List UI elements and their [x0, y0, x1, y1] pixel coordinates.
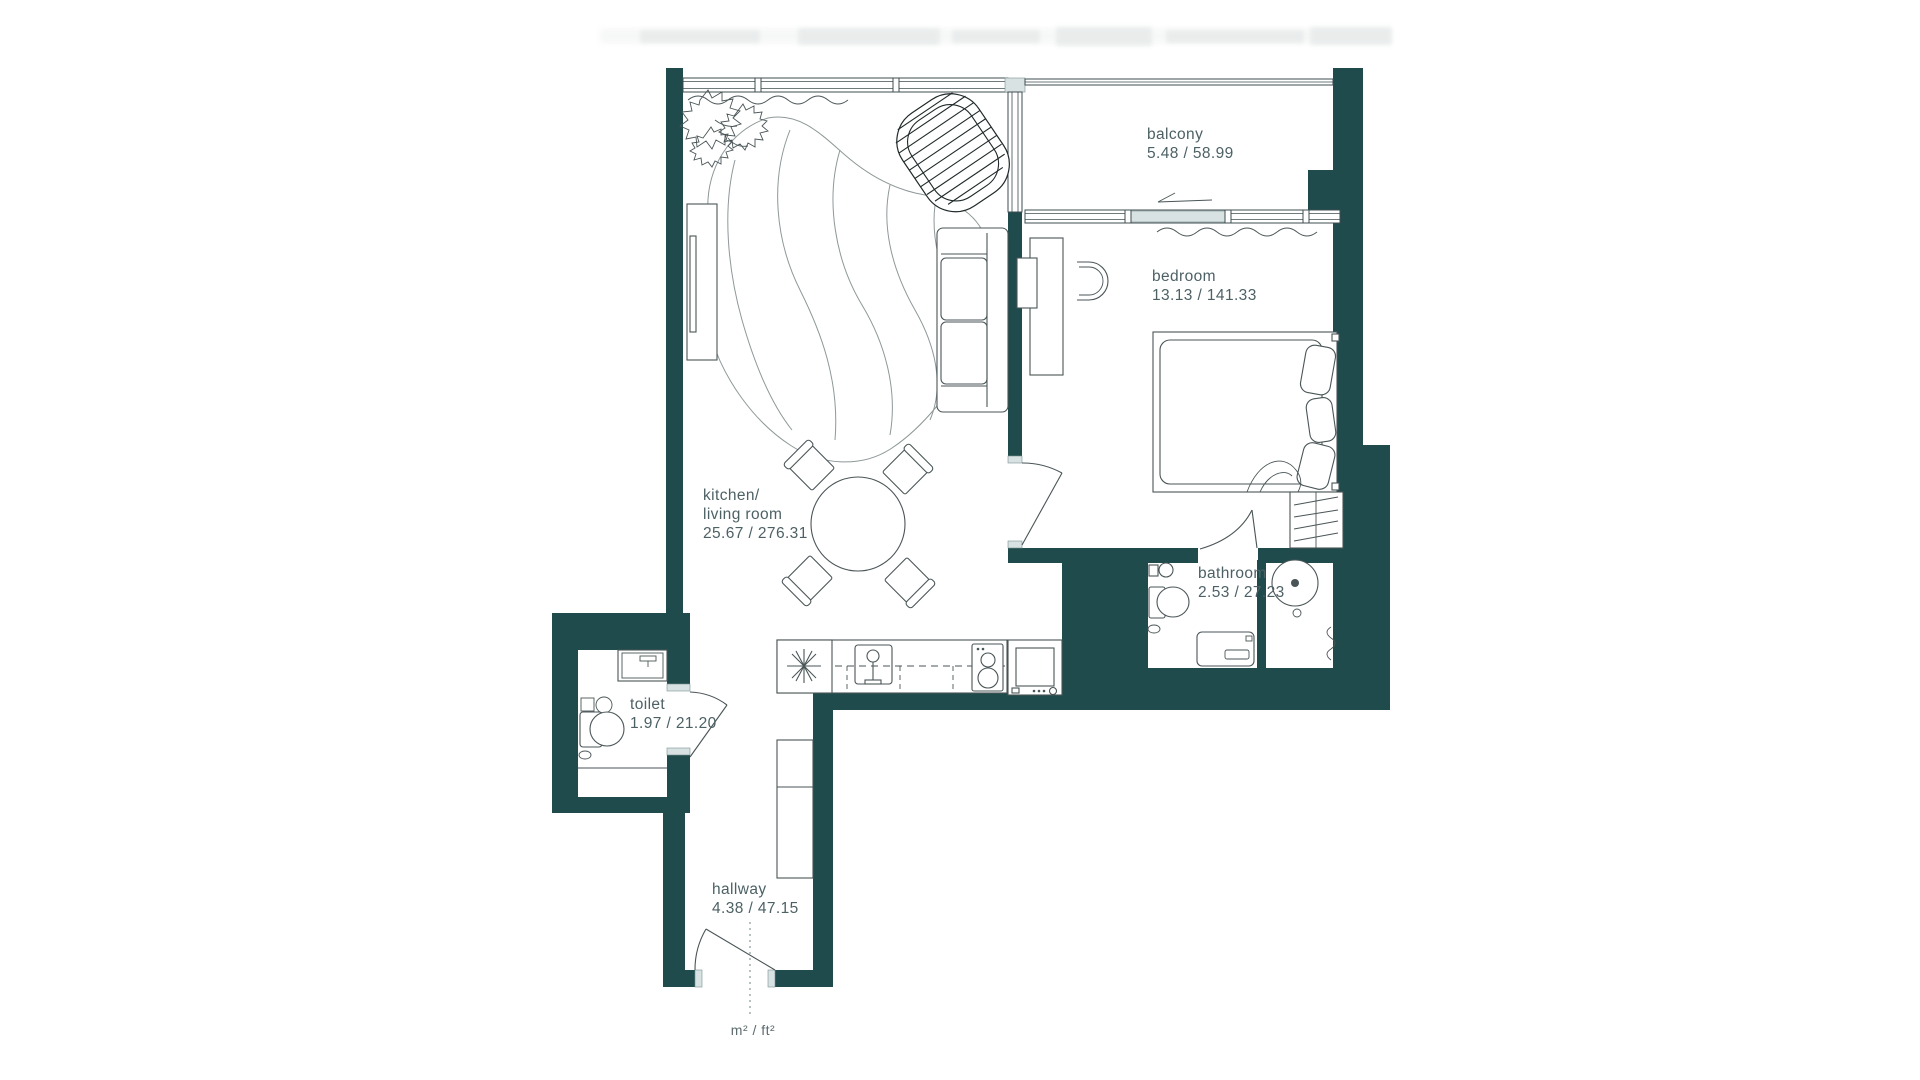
plant — [680, 90, 768, 167]
bathroom-toilet — [1148, 587, 1189, 633]
kitchen-counter — [777, 640, 1007, 693]
dining-table — [811, 477, 905, 571]
room-area: 1.97 / 21.20 — [630, 715, 717, 734]
dining-chair — [783, 439, 836, 492]
room-name: balcony — [1147, 126, 1234, 145]
balcony-label: balcony 5.48 / 58.99 — [1147, 126, 1234, 164]
sliding-door-arrow-icon — [1158, 193, 1212, 202]
room-name: bathroom — [1198, 565, 1285, 584]
room-area: 5.48 / 58.99 — [1147, 145, 1234, 164]
room-area: 25.67 / 276.31 — [703, 525, 808, 544]
bathroom-door — [1200, 510, 1257, 549]
room-name: hallway — [712, 881, 799, 900]
dining-chair — [781, 554, 834, 607]
sofa — [937, 228, 1008, 412]
toilet-label: toilet 1.97 / 21.20 — [630, 696, 717, 734]
bedroom-window — [1025, 210, 1340, 223]
bedroom-label: bedroom 13.13 / 141.33 — [1152, 268, 1257, 306]
curtain-bedroom — [1157, 228, 1317, 236]
bathroom-label: bathroom 2.53 / 27.23 — [1198, 565, 1285, 603]
bed — [1153, 332, 1339, 492]
room-name: bedroom — [1152, 268, 1257, 287]
hood-icon — [787, 649, 821, 683]
hallway-cabinet — [777, 740, 813, 878]
living-room-window — [683, 78, 1025, 92]
room-area: 13.13 / 141.33 — [1152, 287, 1257, 306]
wardrobe — [1290, 492, 1343, 548]
hallway-label: hallway 4.38 / 47.15 — [712, 881, 799, 919]
desk-chair — [1077, 262, 1108, 300]
units-legend: m² / ft² — [731, 1022, 775, 1038]
pillow — [1305, 396, 1337, 443]
washing-machine — [1197, 632, 1254, 666]
entry-door — [695, 929, 775, 970]
cooktop — [972, 644, 1003, 691]
balcony-railing — [1025, 79, 1333, 85]
bedroom-door — [1022, 463, 1062, 545]
room-name: toilet — [630, 696, 717, 715]
oven — [1008, 640, 1062, 695]
floor-plan-page: balcony 5.48 / 58.99 bedroom 13.13 / 141… — [0, 0, 1920, 1080]
room-name: living room — [703, 506, 808, 525]
toilet-sink — [618, 650, 667, 681]
dining-chair — [883, 556, 936, 609]
kitchen-living-label: kitchen/ living room 25.67 / 276.31 — [703, 487, 808, 544]
room-area: 4.38 / 47.15 — [712, 900, 799, 919]
floor-plan-drawing — [0, 0, 1920, 1080]
tv-stand — [687, 204, 717, 360]
bathroom-sink — [1149, 563, 1173, 577]
desk — [1017, 238, 1063, 375]
room-area: 2.53 / 27.23 — [1198, 584, 1285, 603]
lounge-chair — [884, 81, 1023, 225]
balcony-glass-partition — [1008, 92, 1022, 212]
toilet-wc — [579, 697, 624, 759]
room-name: kitchen/ — [703, 487, 808, 506]
